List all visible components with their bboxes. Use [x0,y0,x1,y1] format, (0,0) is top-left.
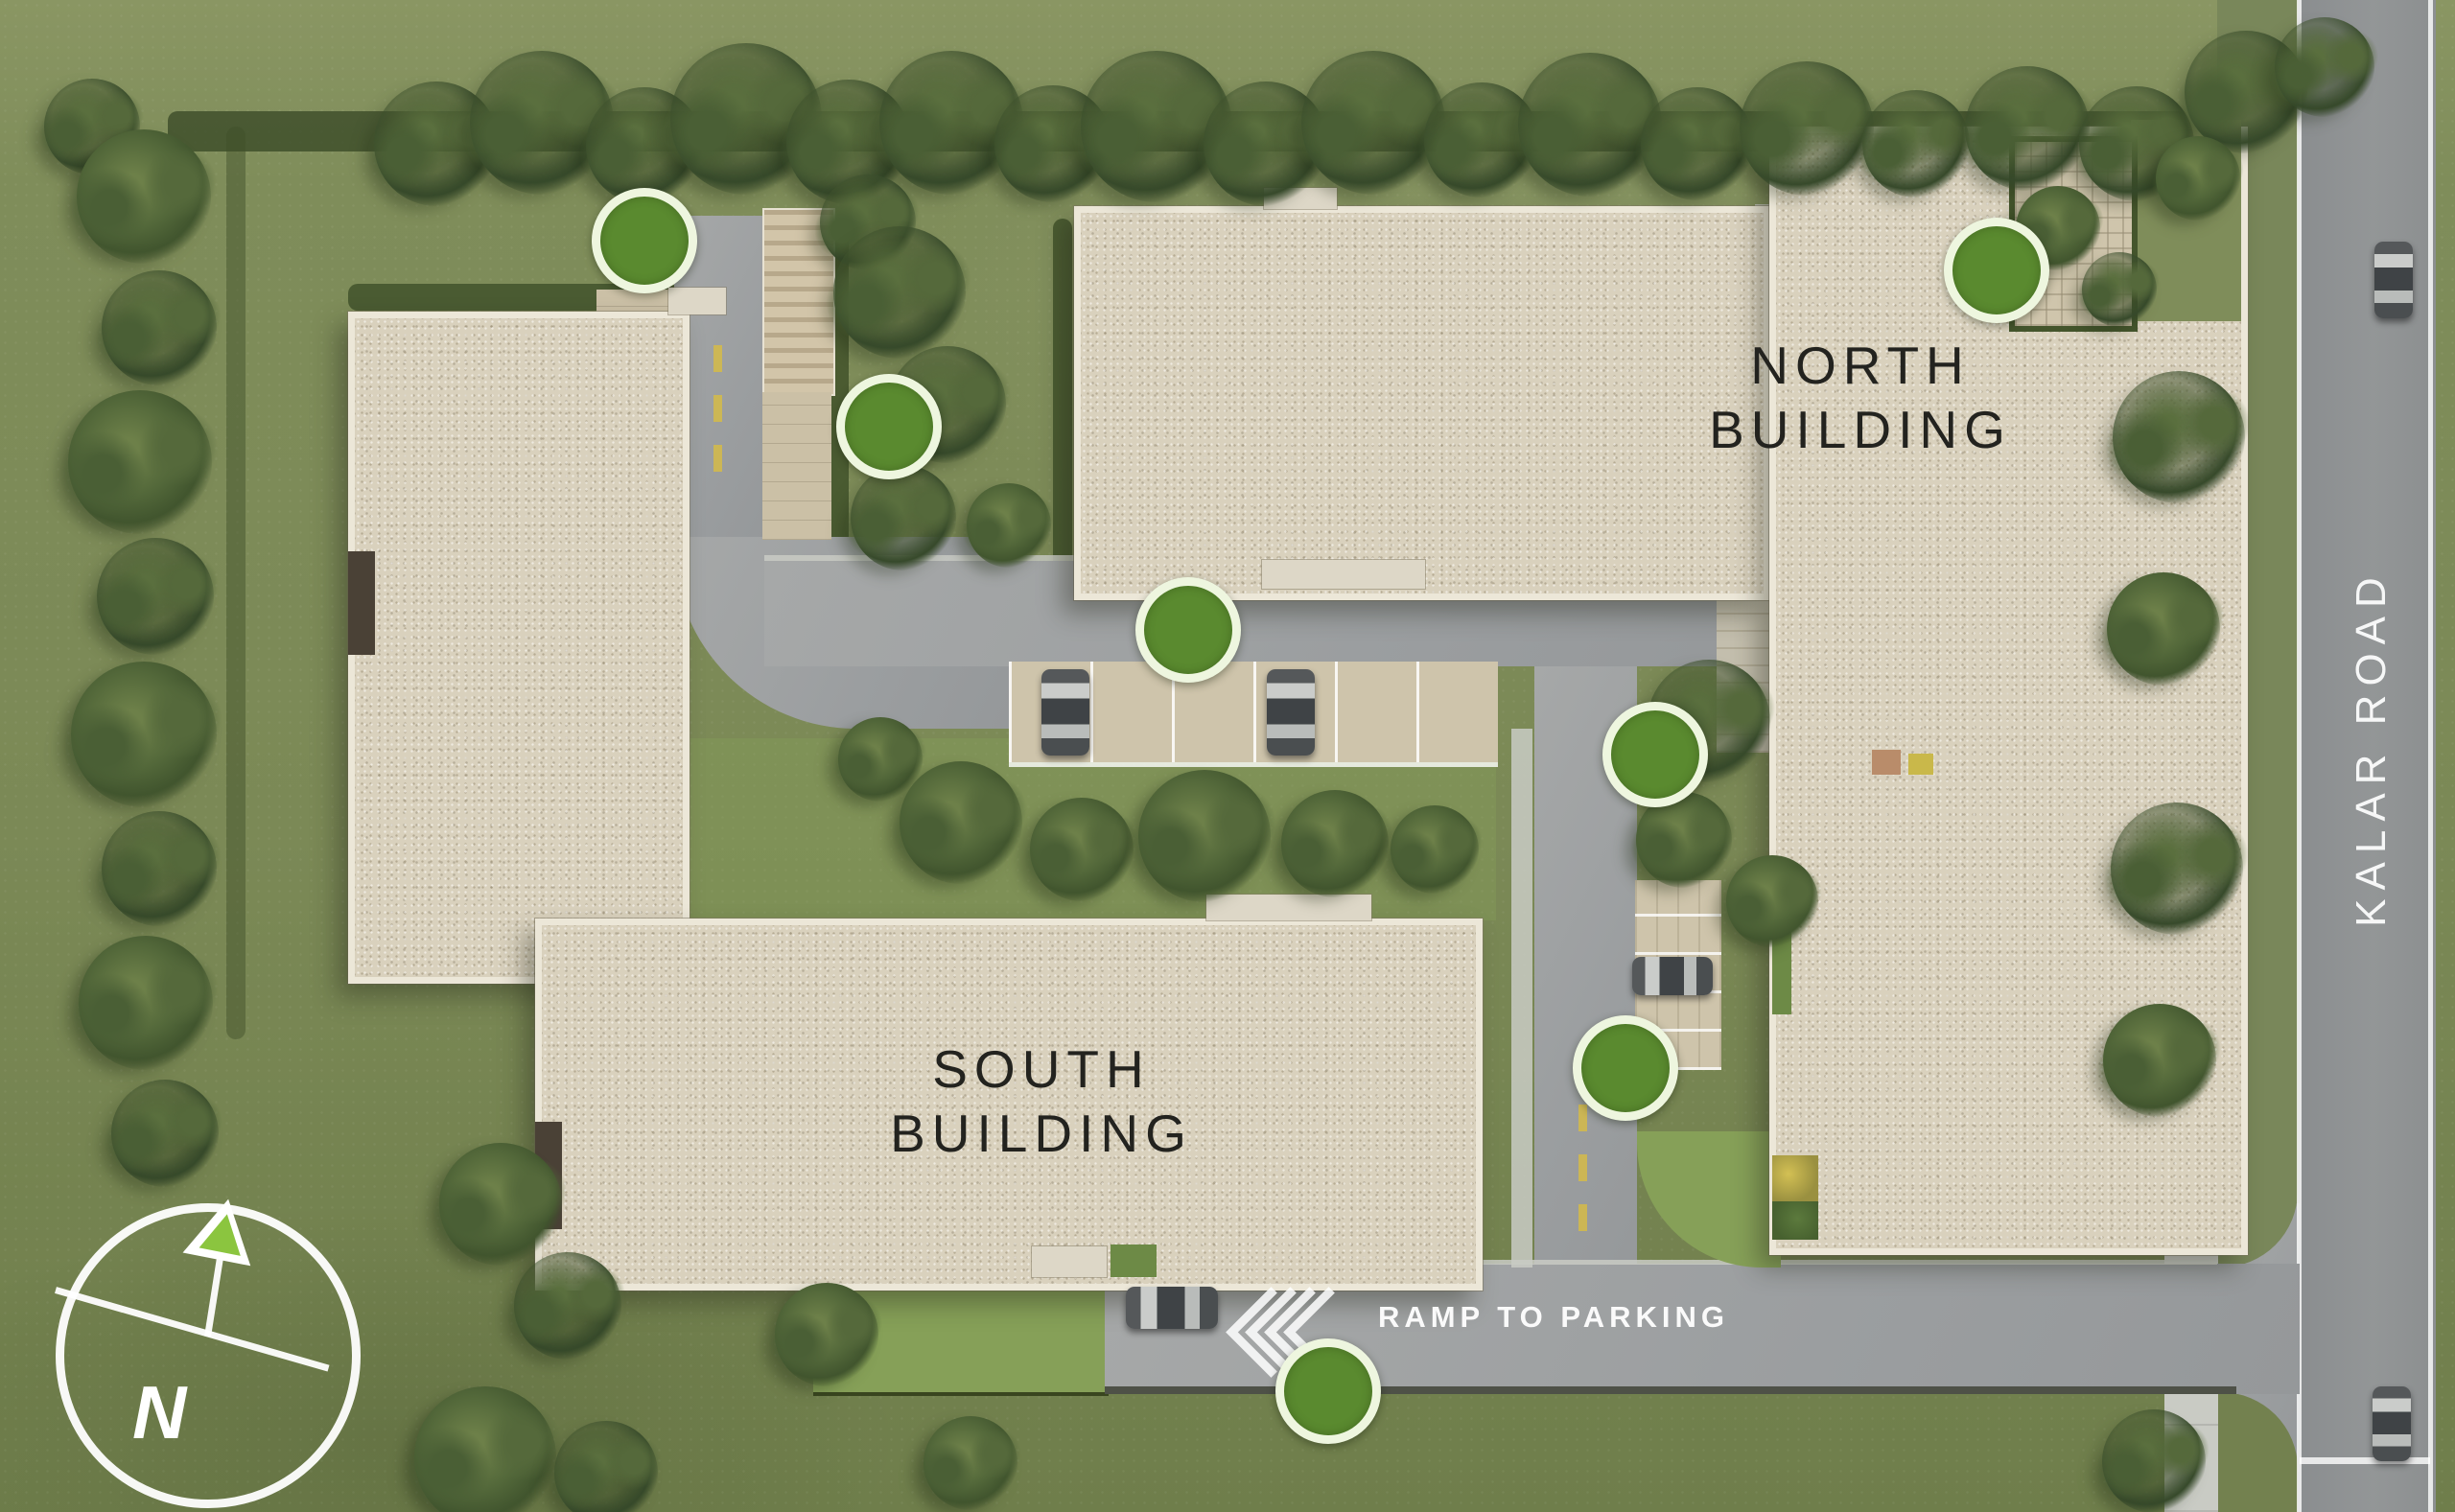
compass-arrowhead-green-icon [199,1210,248,1256]
tree [2102,1409,2206,1512]
marker-3[interactable] [1135,577,1241,683]
tree [833,226,966,359]
tree [2103,1004,2216,1117]
site-plan: NORTH BUILDING SOUTH BUILDING RAMP TO PA… [0,0,2455,1512]
tree [851,465,956,570]
tree [1862,90,1970,198]
tree [900,761,1022,884]
tree [68,390,212,534]
tree [439,1143,562,1266]
tree [2275,17,2374,117]
marker-1[interactable] [592,188,697,293]
tree-layer [0,0,2455,1512]
tree [1138,770,1271,902]
tree [1726,855,1818,947]
marker-4[interactable] [1602,702,1708,807]
tree [1281,790,1389,897]
marker-6[interactable] [1573,1015,1678,1121]
compass-north-letter: N [132,1369,186,1456]
tree [775,1283,878,1386]
tree [79,936,213,1070]
tree [102,270,217,385]
south-building-label-line1: SOUTH [859,1037,1224,1102]
marker-2[interactable] [836,374,942,479]
tree [414,1386,556,1512]
north-building-label-line1: NORTH [1669,334,2052,398]
tree [924,1416,1017,1510]
ramp-to-parking-label: RAMP TO PARKING [1371,1300,1736,1335]
tree [1965,66,2090,191]
tree [1518,53,1662,197]
marker-7[interactable] [1275,1338,1381,1444]
north-building-label-line2: BUILDING [1669,398,2052,462]
south-building-label: SOUTH BUILDING [859,1037,1224,1166]
tree [2156,136,2240,221]
tree [2113,371,2245,503]
tree [514,1252,621,1360]
tree [1740,61,1874,196]
tree [967,483,1051,568]
marker-5[interactable] [1944,218,2049,323]
tree [1301,51,1445,195]
tree [1391,805,1479,894]
kalar-road-label: KALAR ROAD [2348,537,2397,959]
tree [2111,803,2243,935]
south-building-label-line2: BUILDING [859,1102,1224,1166]
tree [77,129,211,264]
tree [71,662,217,807]
tree [97,538,214,655]
tree [2107,572,2220,686]
tree [554,1421,658,1512]
tree [1030,798,1134,901]
north-building-label: NORTH BUILDING [1669,334,2052,462]
tree [102,811,217,926]
tree [2082,252,2157,327]
tree [111,1080,219,1187]
